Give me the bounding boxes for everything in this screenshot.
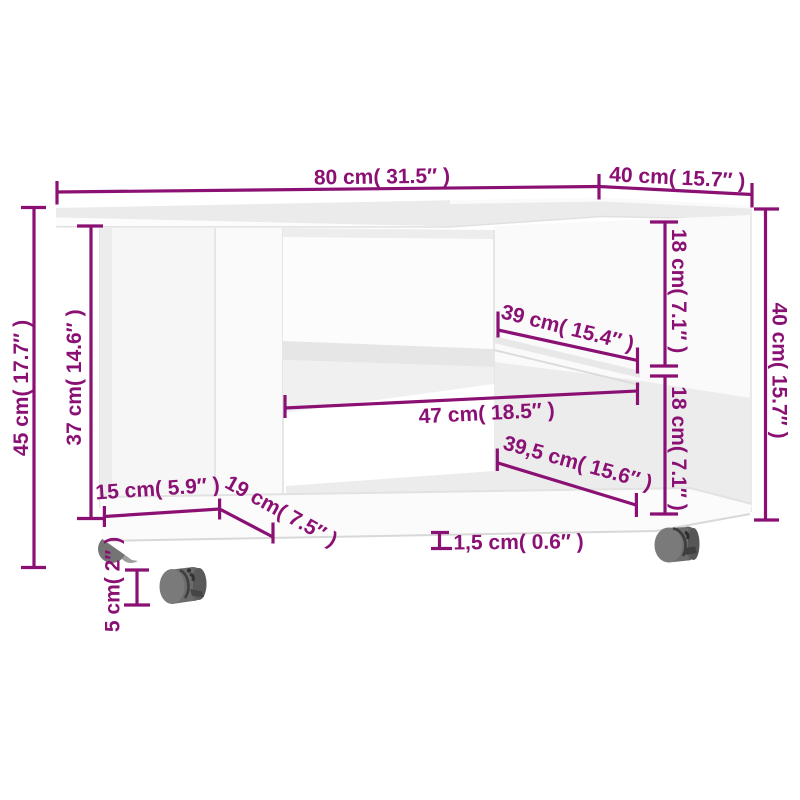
svg-text:5 cm( 2″ ): 5 cm( 2″ ) [102,537,125,632]
svg-text:18 cm( 7.1″ ): 18 cm( 7.1″ ) [667,386,690,510]
svg-text:1,5 cm( 0.6″ ): 1,5 cm( 0.6″ ) [453,530,583,554]
svg-text:45 cm( 17.7″ ): 45 cm( 17.7″ ) [10,320,33,456]
svg-text:40 cm( 15.7″ ): 40 cm( 15.7″ ) [768,302,791,438]
svg-text:80 cm( 31.5″ ): 80 cm( 31.5″ ) [314,165,450,190]
svg-text:18 cm( 7.1″ ): 18 cm( 7.1″ ) [667,229,690,353]
svg-text:37 cm( 14.6″ ): 37 cm( 14.6″ ) [63,309,86,445]
